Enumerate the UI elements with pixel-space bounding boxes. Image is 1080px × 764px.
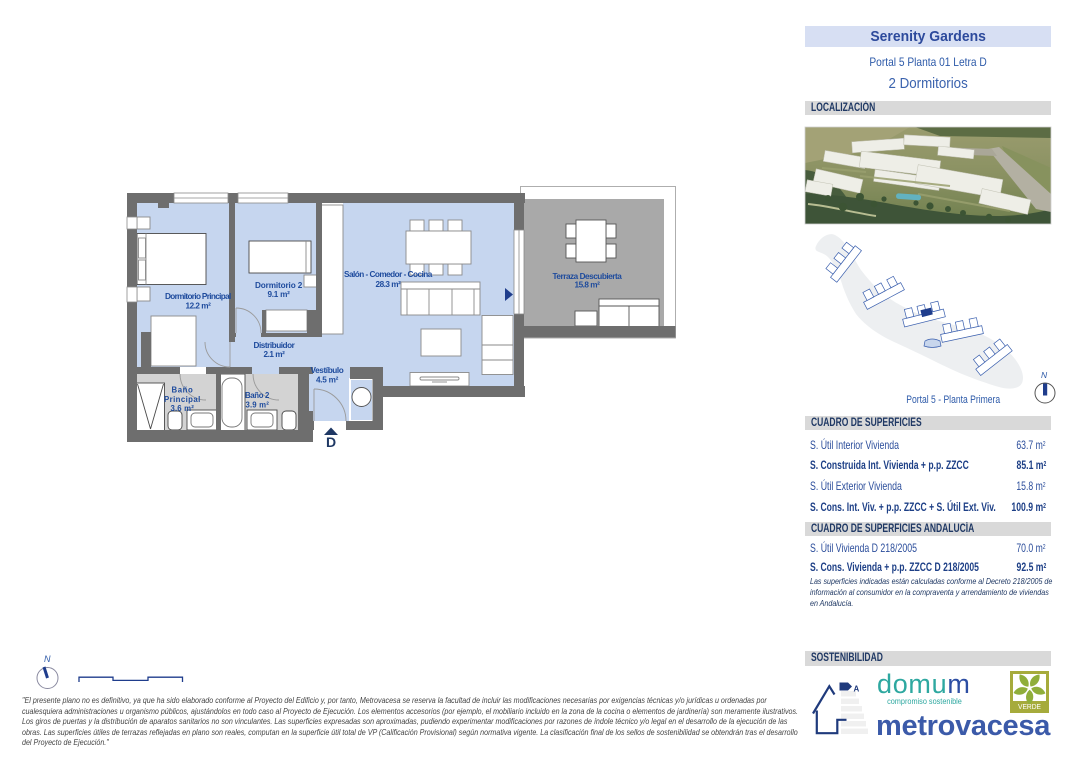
svg-text:3.9 m²: 3.9 m²: [246, 401, 270, 410]
svg-text:Dormitorio Principal: Dormitorio Principal: [165, 292, 231, 301]
svg-text:Distribuidor: Distribuidor: [254, 341, 296, 350]
svg-text:Principal: Principal: [164, 395, 200, 404]
svg-text:Vestíbulo: Vestíbulo: [311, 366, 344, 375]
svg-text:N: N: [1041, 370, 1048, 380]
svg-text:28.3 m²: 28.3 m²: [376, 280, 402, 289]
svg-text:Salón - Comedor - Cocina: Salón - Comedor - Cocina: [344, 270, 433, 279]
svg-text:15.8 m²: 15.8 m²: [575, 281, 601, 290]
svg-text:A: A: [854, 685, 860, 694]
svg-text:N: N: [44, 654, 51, 664]
svg-text:4.5 m²: 4.5 m²: [316, 376, 339, 385]
svg-text:2.1 m²: 2.1 m²: [264, 350, 286, 359]
svg-text:9.1 m²: 9.1 m²: [268, 290, 291, 299]
svg-text:12.2 m²: 12.2 m²: [186, 302, 212, 311]
svg-text:Baño 2: Baño 2: [245, 391, 270, 400]
svg-text:3.6 m²: 3.6 m²: [171, 404, 195, 413]
svg-text:Baño: Baño: [172, 386, 194, 395]
svg-text:D: D: [326, 434, 336, 450]
svg-text:VERDE: VERDE: [1018, 702, 1041, 711]
svg-text:Dormitorio 2: Dormitorio 2: [255, 281, 303, 290]
